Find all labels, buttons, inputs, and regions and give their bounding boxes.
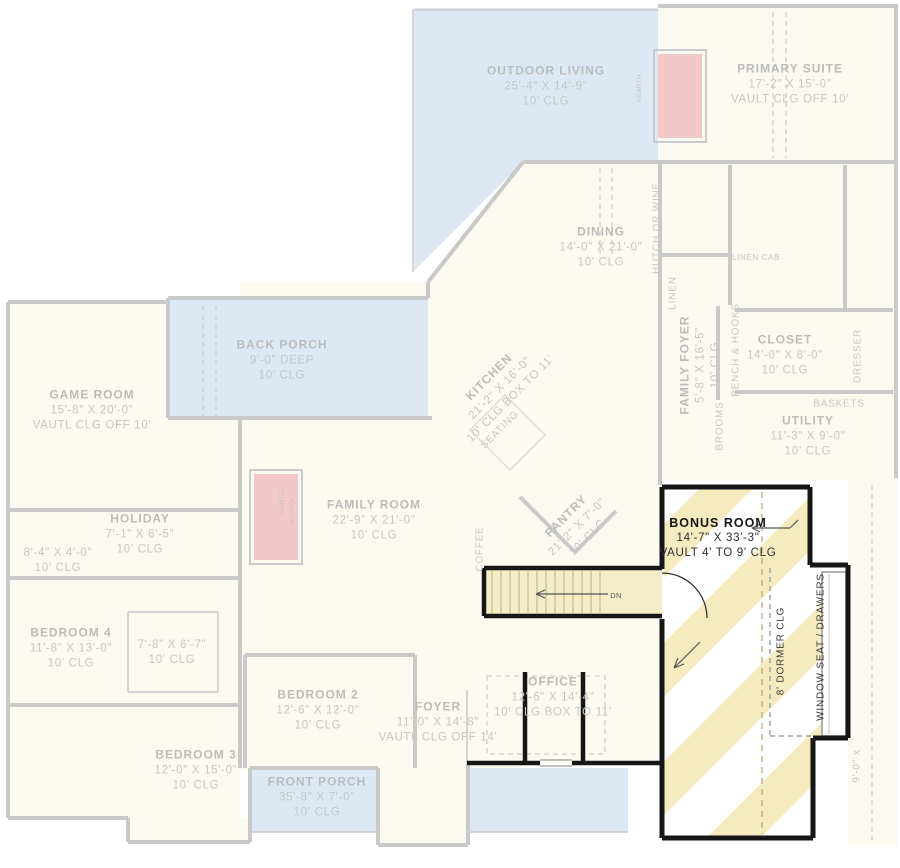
annotation-hutch-or-wine: HUTCH OR WINE <box>651 182 664 274</box>
annotation-stairs-dn: DN <box>610 591 622 601</box>
room-label-bedroom-4-closet: 7'-8" X 6'-7" 10' CLG <box>138 638 207 668</box>
room-label-dining: DINING 14'-0" X 21'-0" 10' CLG <box>560 224 643 269</box>
annotation-window-seat: WINDOW SEAT / DRAWERS <box>815 573 828 721</box>
room-label-outdoor-living: OUTDOOR LIVING 25'-4" X 14'-9" 10' CLG <box>487 63 605 108</box>
floor-plan: OUTDOOR LIVING 25'-4" X 14'-9" 10' CLG P… <box>0 0 900 868</box>
room-label-bedroom-2: BEDROOM 2 12'-6" X 12'-0" 10' CLG <box>277 687 360 732</box>
room-label-foyer: FOYER 11'-0" X 14'-8" VAUTL CLG OFF 14' <box>379 699 498 744</box>
room-label-utility: UTILITY 11'-3" X 9'-0" 10' CLG <box>770 413 845 458</box>
annotation-hearth-family: HEARTH <box>289 498 297 526</box>
room-label-holiday: HOLIDAY 7'-1" X 6'-5" 10' CLG <box>106 511 175 556</box>
annotation-dresser: DRESSER <box>852 329 865 383</box>
room-label-bedroom-4: BEDROOM 4 11'-8" X 13'-0" 10' CLG <box>30 625 112 670</box>
room-label-holiday-closet: 8'-4" X 4'-0" 10' CLG <box>24 546 93 576</box>
annotation-bench-hooks: BENCH & HOOKS <box>730 303 743 397</box>
room-label-family-foyer: FAMILY FOYER 5'-8" X 16'-5" 10' CLG <box>677 316 722 415</box>
annotation-mantle: MANTLE <box>279 487 287 515</box>
annotation-hearth-outdoor: HEARTH <box>636 74 644 102</box>
annotation-brooms: BROOMS <box>714 401 727 450</box>
room-label-game-room: GAME ROOM 15'-8" X 20'-0" VAUTL CLG OFF … <box>33 387 152 432</box>
room-label-bonus-room: BONUS ROOM 14'-7" X 33'-3" VAULT 4' TO 9… <box>660 515 777 561</box>
room-label-front-porch: FRONT PORCH 35'-8" X 7'-0" 10' CLG <box>268 774 367 819</box>
annotation-coffee: COFFEE <box>474 526 487 571</box>
room-label-family-room: FAMILY ROOM 22'-9" X 21'-0" 10' CLG <box>327 497 421 542</box>
annotation-baskets: BASKETS <box>813 398 865 411</box>
staircase <box>486 570 662 616</box>
room-label-office: OFFICE 12'-6" X 14'-4" 10' CLG BOX TO 11… <box>494 674 612 719</box>
annotation-garage-dim: 9'-0" x <box>851 749 864 782</box>
annotation-dormer-clg: 8' DORMER CLG <box>775 607 788 695</box>
room-label-back-porch: BACK PORCH 9'-0" DEEP 10' CLG <box>237 337 328 382</box>
annotation-linen-cab: LINEN CAB <box>732 253 780 263</box>
room-label-bedroom-3: BEDROOM 3 12'-0" X 15'-0" 10' CLG <box>155 747 238 792</box>
room-label-primary-suite: PRIMARY SUITE 17'-2" X 15'-0" VAULT CLG … <box>731 61 849 106</box>
annotation-linen: LINEN <box>667 276 680 309</box>
room-label-closet: CLOSET 14'-0" X 8'-0" 10' CLG <box>747 332 823 377</box>
